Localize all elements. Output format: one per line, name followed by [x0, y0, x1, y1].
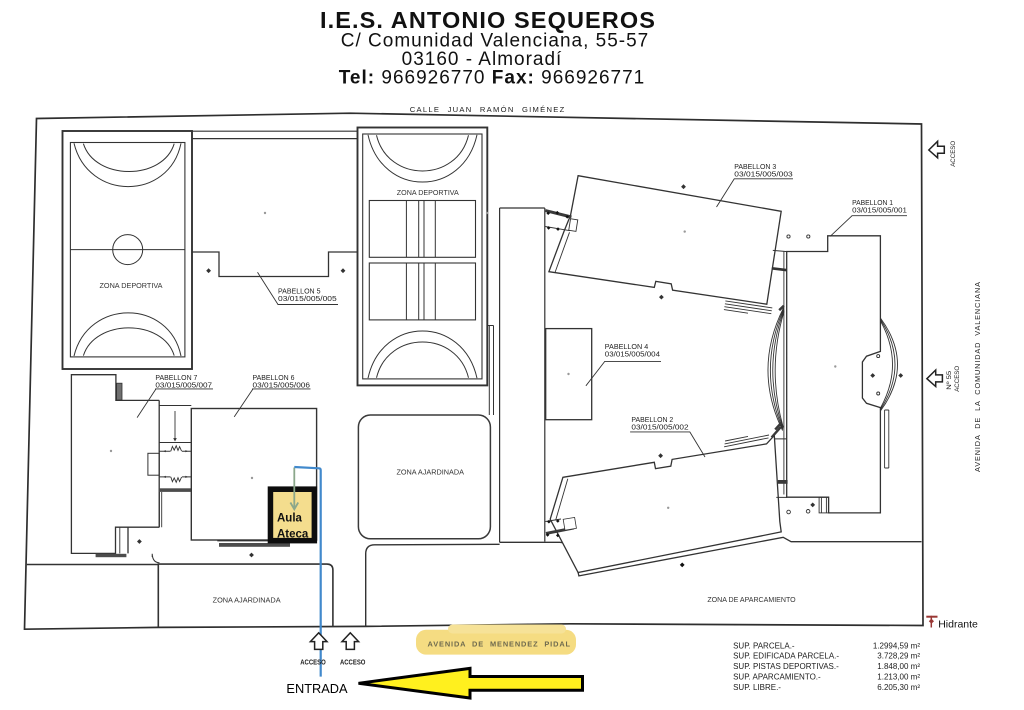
svg-text:ZONA AJARDINADA: ZONA AJARDINADA — [396, 467, 464, 476]
svg-text:AVENIDA DE MENENDEZ PIDAL: AVENIDA DE MENENDEZ PIDAL — [428, 640, 571, 649]
svg-text:3.728,29 m²: 3.728,29 m² — [877, 652, 920, 661]
svg-text:03/015/005/005: 03/015/005/005 — [278, 294, 337, 303]
svg-text:Tel: 966926770 Fax: 966926771: Tel: 966926770 Fax: 966926771 — [339, 67, 646, 88]
svg-text:ACCESO: ACCESO — [300, 660, 326, 667]
svg-text:CALLE JUAN RAMÓN GIMÉNEZ: CALLE JUAN RAMÓN GIMÉNEZ — [410, 105, 565, 114]
svg-text:SUP. PISTAS DEPORTIVAS.-: SUP. PISTAS DEPORTIVAS.- — [733, 662, 839, 671]
svg-text:1.213,00 m²: 1.213,00 m² — [877, 673, 920, 682]
svg-text:Nº 55: Nº 55 — [946, 370, 953, 389]
svg-text:SUP. APARCAMIENTO.-: SUP. APARCAMIENTO.- — [733, 673, 821, 682]
svg-text:ENTRADA: ENTRADA — [286, 681, 348, 696]
svg-text:ZONA AJARDINADA: ZONA AJARDINADA — [213, 596, 281, 605]
svg-text:SUP. PARCELA.-: SUP. PARCELA.- — [733, 641, 795, 650]
svg-text:03/015/005/001: 03/015/005/001 — [852, 206, 907, 215]
svg-text:ACCESO: ACCESO — [340, 660, 366, 667]
svg-text:03/015/005/006: 03/015/005/006 — [253, 380, 311, 389]
svg-text:1.848,00 m²: 1.848,00 m² — [877, 662, 920, 671]
svg-text:I.E.S. ANTONIO SEQUEROS: I.E.S. ANTONIO SEQUEROS — [320, 7, 656, 33]
svg-text:6.205,30 m²: 6.205,30 m² — [877, 683, 920, 692]
svg-text:ZONA DEPORTIVA: ZONA DEPORTIVA — [100, 281, 163, 290]
svg-text:03/015/005/002: 03/015/005/002 — [631, 423, 688, 432]
svg-text:03/015/005/004: 03/015/005/004 — [605, 350, 660, 359]
svg-text:ZONA DE APARCAMIENTO: ZONA DE APARCAMIENTO — [707, 595, 796, 604]
svg-text:ACCESO: ACCESO — [954, 366, 961, 392]
svg-text:AVENIDA DE LA COMUNIDAD VALENC: AVENIDA DE LA COMUNIDAD VALENCIANA — [973, 282, 982, 472]
svg-text:Ateca: Ateca — [277, 528, 309, 540]
svg-text:Hidrante: Hidrante — [938, 618, 978, 630]
svg-text:SUP. EDIFICADA PARCELA.-: SUP. EDIFICADA PARCELA.- — [733, 652, 839, 661]
svg-text:1.2994,59 m²: 1.2994,59 m² — [873, 641, 920, 650]
svg-text:ZONA DEPORTIVA: ZONA DEPORTIVA — [397, 188, 459, 197]
svg-text:Aula: Aula — [277, 513, 303, 525]
svg-text:03/015/005/007: 03/015/005/007 — [155, 380, 212, 389]
svg-text:03/015/005/003: 03/015/005/003 — [734, 170, 792, 179]
svg-text:SUP. LIBRE.-: SUP. LIBRE.- — [733, 683, 781, 692]
svg-text:ACCESO: ACCESO — [950, 141, 957, 167]
